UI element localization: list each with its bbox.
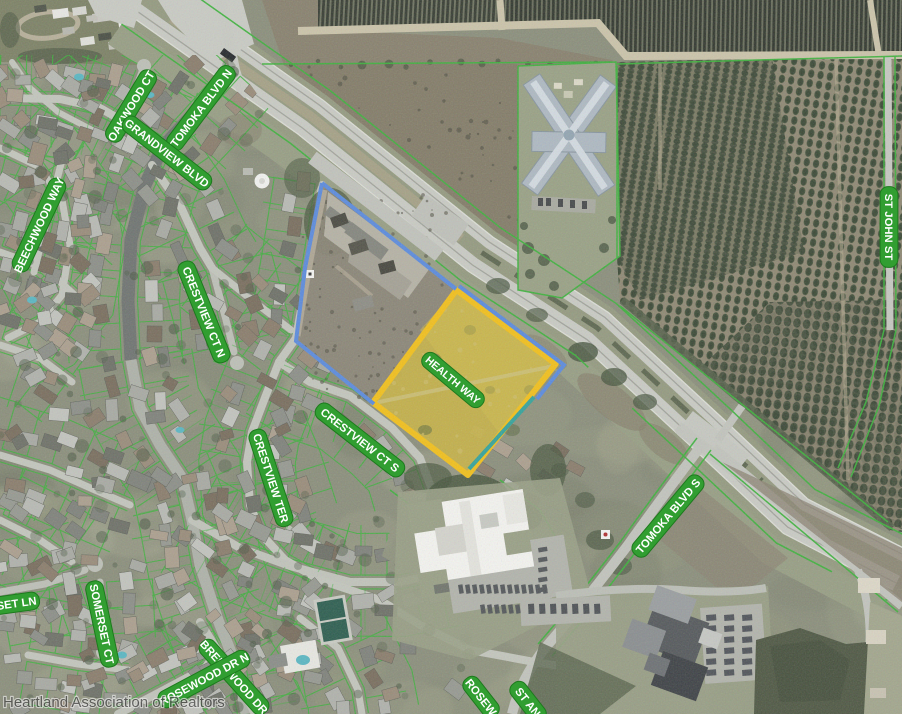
svg-text:Heartland Association of Realt: Heartland Association of Realtors: [3, 694, 225, 711]
svg-text:ST JOHN ST: ST JOHN ST: [882, 194, 894, 261]
